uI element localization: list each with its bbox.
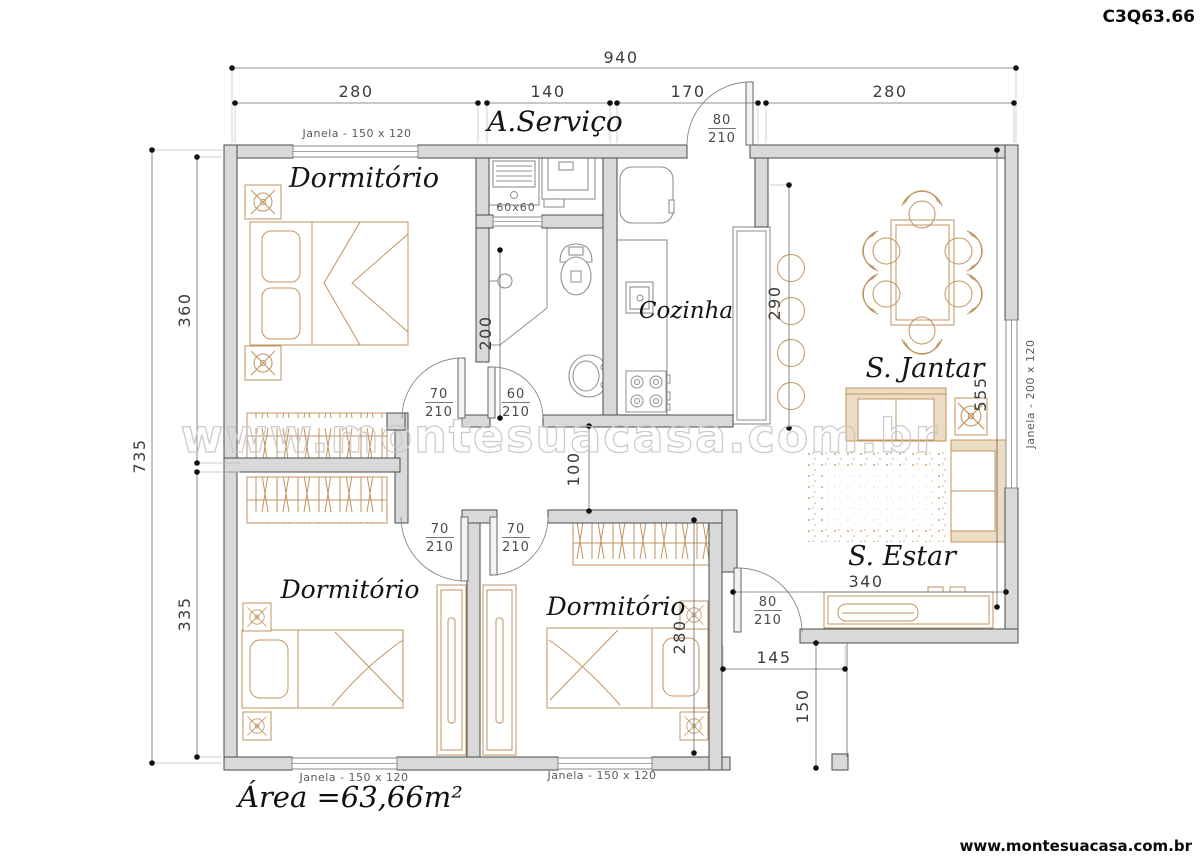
window-bedroom3 (558, 758, 652, 769)
wall-right-lower (1005, 488, 1018, 643)
room-label-laundry: A.Serviço (484, 105, 623, 138)
dim-tv-wall: 340 (848, 572, 883, 591)
dim-top-laundry: 140 (530, 82, 565, 101)
door-size-bedroom2: 70 210 (426, 522, 454, 555)
wall-porch-stub (722, 510, 737, 572)
window-bedroom2 (292, 758, 397, 769)
dim-bathroom: 200 (476, 315, 495, 350)
dim-top-bedroom1: 280 (338, 82, 373, 101)
dim-top-kitchen: 170 (670, 82, 705, 101)
svg-text:60: 60 (507, 387, 526, 402)
dim-counter: 290 (765, 285, 784, 320)
svg-text:70: 70 (431, 522, 450, 537)
wall-right-upper (1005, 145, 1018, 320)
floor-plan-drawing: 940 280 140 170 280 735 360 335 200 100 … (0, 0, 1200, 860)
bar-stools (778, 255, 805, 410)
room-label-kitchen: Cozinha (639, 298, 733, 324)
room-label-bedroom3: Dormitório (546, 592, 686, 621)
window-laundry-pass (493, 217, 542, 226)
room-label-dining: S. Jantar (866, 353, 987, 384)
svg-text:210: 210 (708, 131, 736, 146)
wardrobe (573, 522, 712, 565)
door-size-bedroom3: 70 210 (502, 522, 530, 555)
window-bedroom1 (293, 146, 418, 157)
single-bed (242, 630, 403, 708)
fridge (620, 167, 674, 223)
wall-bedrooms-divider (467, 523, 480, 757)
door-size-entry: 80 210 (708, 113, 736, 146)
dim-top-dining: 280 (872, 82, 907, 101)
wall-laundry-bottom-left (476, 215, 493, 228)
room-label-bedroom1: Dormitório (288, 163, 439, 194)
website-url: www.montesuacasa.com.br (960, 837, 1193, 855)
double-bed (250, 222, 408, 345)
wall-laundry-bottom-right (542, 215, 603, 228)
svg-text:70: 70 (430, 387, 449, 402)
tv-stand (824, 587, 993, 628)
watermark: www.montesuacasa.com.br (181, 409, 940, 463)
svg-text:210: 210 (502, 540, 530, 555)
wall-top-right (750, 145, 1018, 158)
dim-porch-width: 145 (756, 648, 791, 667)
wall-bedroom3-right (709, 510, 722, 770)
sofa-small (951, 440, 1007, 542)
wall-living-bottom (800, 629, 1018, 643)
dim-overall-height: 735 (130, 438, 149, 473)
wall-bottom-2 (397, 757, 558, 770)
toilet (560, 244, 592, 295)
shower (489, 228, 547, 345)
window-label-bedroom3: Janela - 150 x 120 (547, 769, 657, 782)
porch-column (832, 754, 848, 770)
dim-left-bedroom1: 360 (175, 292, 194, 327)
room-label-bedroom2: Dormitório (280, 575, 420, 604)
svg-text:210: 210 (754, 613, 782, 628)
door-size-porch: 80 210 (754, 595, 782, 628)
wall-kitchen-left (603, 158, 617, 427)
dim-left-bedroom2: 335 (175, 596, 194, 631)
window-label-bedroom1: Janela - 150 x 120 (302, 127, 412, 140)
svg-text:210: 210 (426, 540, 454, 555)
plan-code: C3Q63.66 (1102, 7, 1195, 27)
dim-overall-width: 940 (603, 48, 638, 67)
window-living (1006, 320, 1017, 488)
stove (626, 371, 670, 412)
dim-porch-depth: 150 (793, 688, 812, 723)
window-label-living: Janela - 200 x 120 (1024, 340, 1037, 450)
wall-top-mid (418, 145, 687, 158)
area-label: Área =63,66m² (235, 779, 463, 814)
dining-table (891, 220, 954, 325)
svg-text:70: 70 (507, 522, 526, 537)
svg-text:80: 80 (759, 595, 778, 610)
bar-counter (733, 227, 770, 424)
room-label-living: S. Estar (848, 541, 958, 572)
wall-entry-stub (755, 158, 768, 227)
laundry-tank (489, 156, 539, 205)
dim-bedroom3: 280 (670, 619, 689, 654)
tank-size-label: 60x60 (496, 201, 536, 214)
floor-plan-page: 940 280 140 170 280 735 360 335 200 100 … (0, 0, 1200, 860)
svg-text:80: 80 (713, 113, 732, 128)
wall-bottom-1 (224, 757, 292, 770)
rug (808, 452, 948, 542)
washing-machine (542, 150, 595, 207)
